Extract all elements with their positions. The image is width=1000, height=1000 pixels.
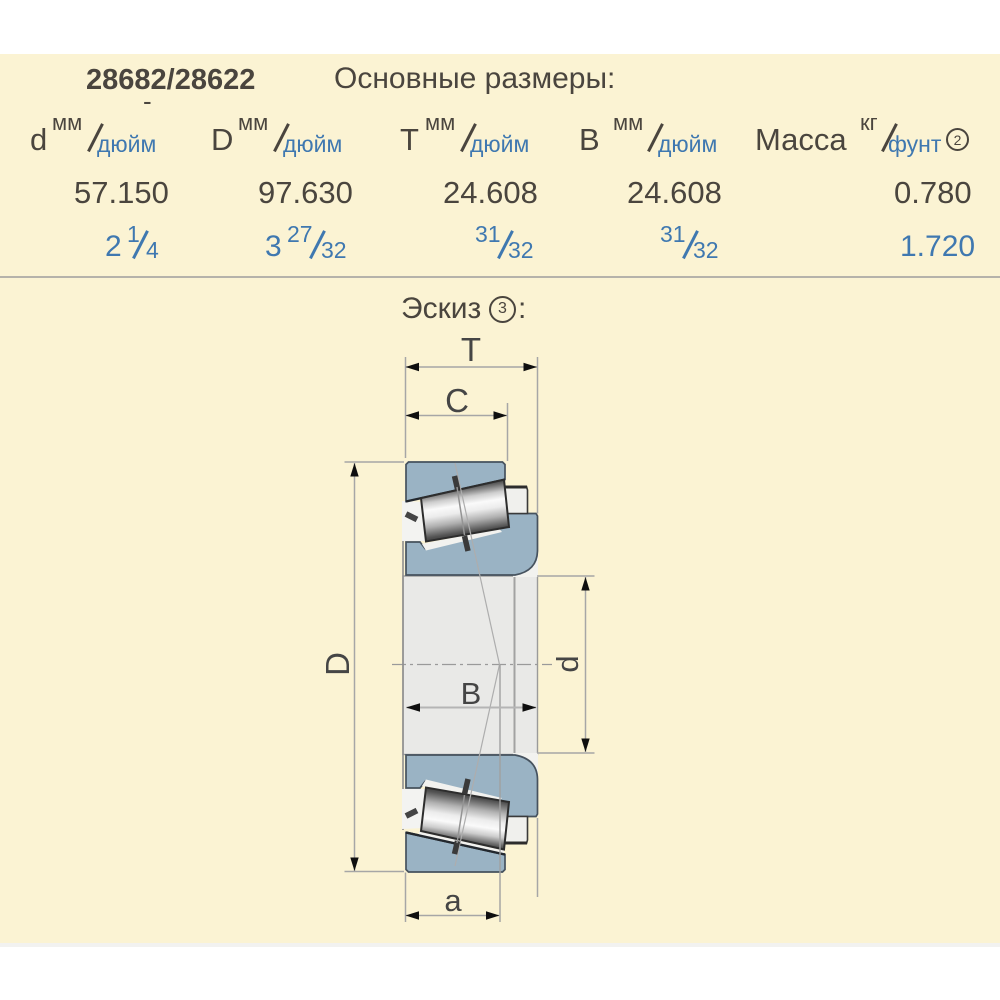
- svg-text:B: B: [461, 676, 482, 711]
- svg-text:T: T: [461, 331, 481, 368]
- svg-text:C: C: [445, 382, 469, 419]
- svg-text:d: d: [550, 655, 585, 672]
- svg-text:a: a: [444, 883, 462, 918]
- svg-text:D: D: [319, 652, 356, 676]
